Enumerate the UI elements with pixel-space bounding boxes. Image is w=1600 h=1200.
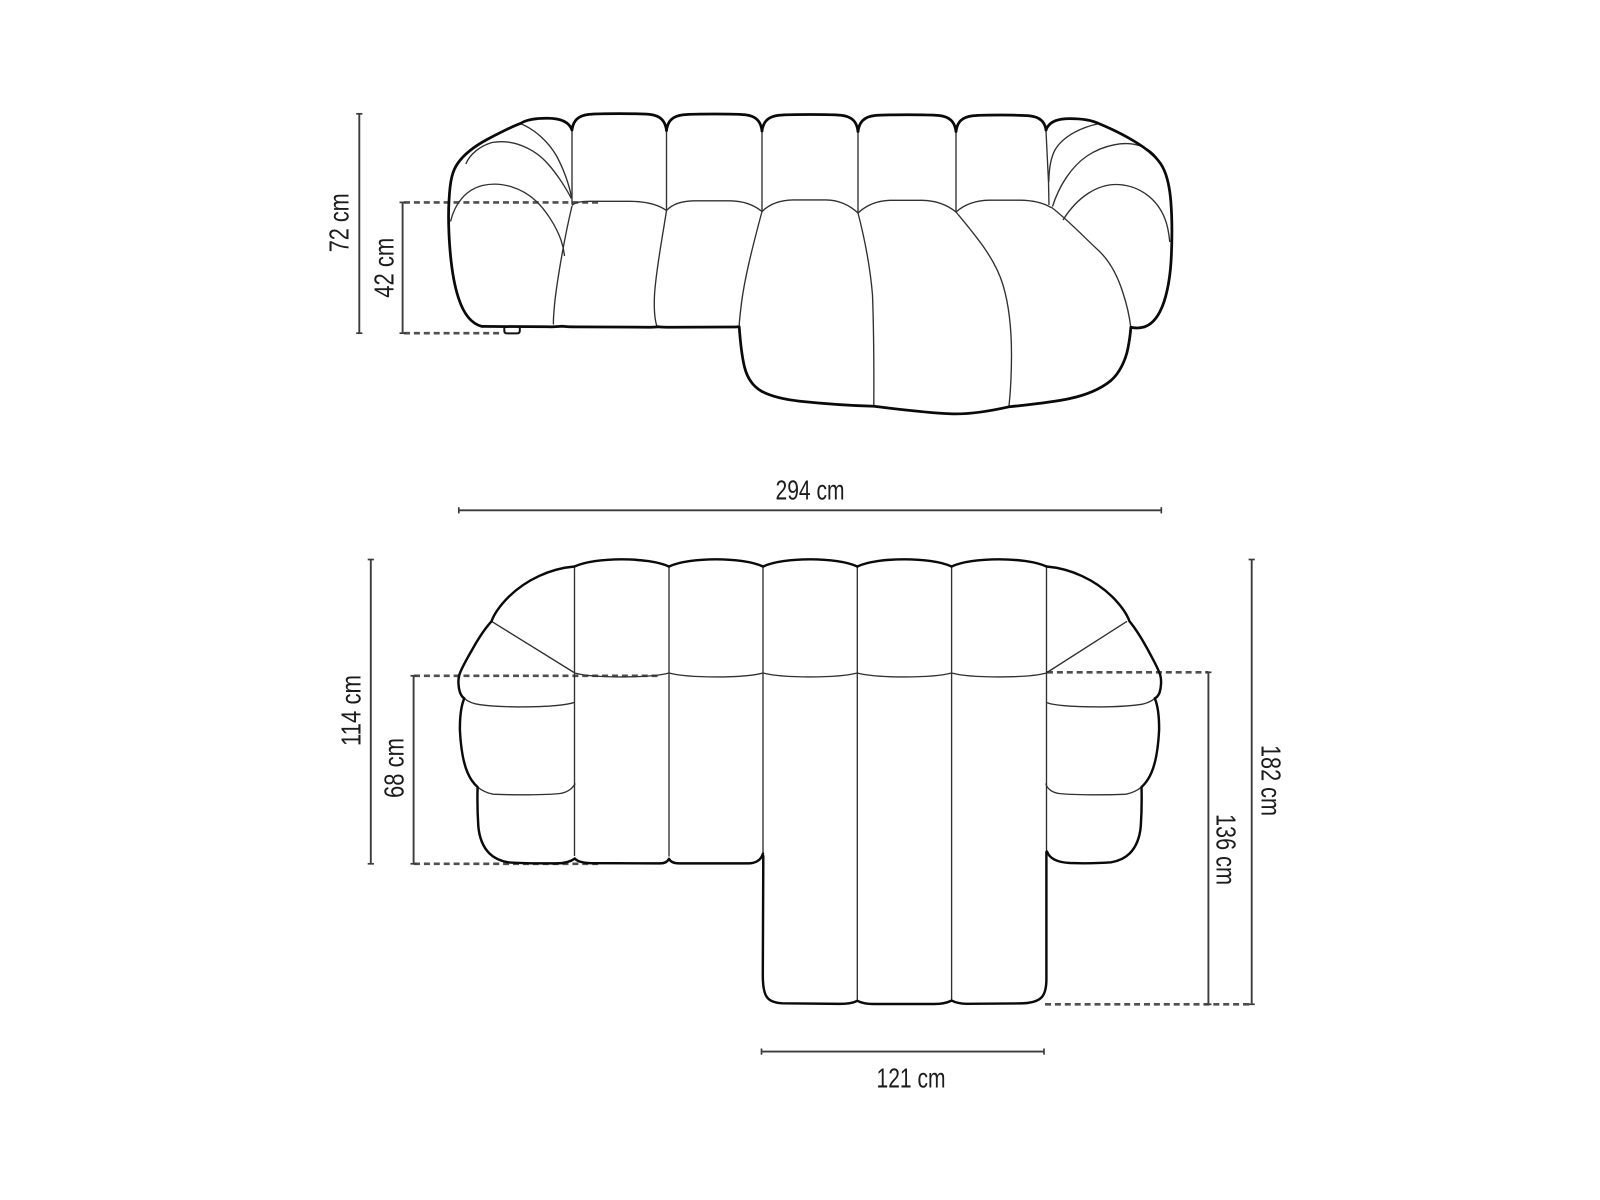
svg-text:121 cm: 121 cm <box>877 1063 946 1094</box>
svg-text:182 cm: 182 cm <box>1256 745 1287 816</box>
svg-text:294 cm: 294 cm <box>776 475 845 506</box>
svg-text:72 cm: 72 cm <box>323 193 354 252</box>
svg-text:42 cm: 42 cm <box>368 238 399 298</box>
svg-text:114 cm: 114 cm <box>335 675 366 746</box>
svg-text:136 cm: 136 cm <box>1211 814 1242 885</box>
svg-text:68 cm: 68 cm <box>378 738 409 798</box>
